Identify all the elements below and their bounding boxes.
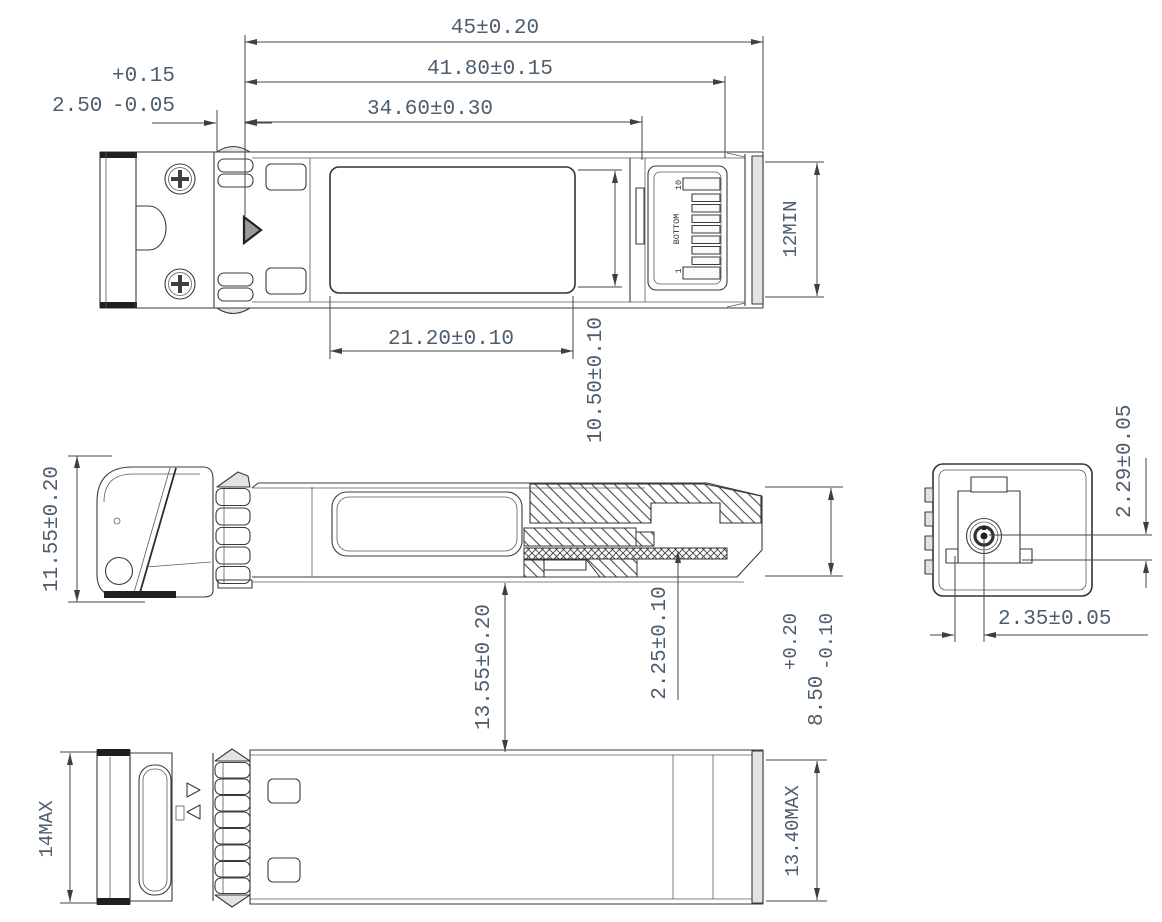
housing-slot — [266, 164, 306, 190]
connector-bottom-label: BOTTOM — [672, 214, 682, 245]
latch-lever-edge — [139, 468, 176, 596]
line — [727, 303, 745, 307]
hatched-bottom — [524, 560, 544, 577]
dim-label-width: 21.20±0.10 — [388, 328, 514, 351]
dim-height-max: 14MAX — [36, 800, 58, 858]
body-slot — [332, 492, 522, 556]
housing-slot — [268, 779, 300, 803]
handle-slot — [139, 765, 171, 895]
dim-height-value: 8.50 — [806, 676, 829, 726]
bale-edge-bar — [97, 749, 130, 756]
phillips-screw — [165, 269, 195, 299]
dim-latch-height: 11.55±0.20 — [41, 466, 64, 592]
pin-number-bottom: 1 — [674, 268, 684, 273]
line — [133, 468, 170, 596]
latch-detail — [176, 806, 184, 820]
bale-edge-bar — [100, 152, 137, 158]
bale-edge-bar — [100, 302, 137, 308]
dim-width-max: 13.40MAX — [782, 785, 804, 877]
end-cap — [752, 156, 763, 304]
dim-height-plus: +0.20 — [780, 613, 802, 670]
grip-ribs — [216, 472, 252, 588]
dim-width-min: 12MIN — [780, 200, 802, 257]
line — [727, 153, 745, 157]
drawing-canvas: 10 BOTTOM 1 45±0.20 41.80±0.15 34.60±0. — [0, 0, 1162, 922]
latch-pivot-circle — [106, 558, 133, 585]
hatched-housing — [530, 484, 761, 523]
line — [146, 562, 211, 567]
section-hatch — [524, 484, 761, 577]
pin-number-top: 10 — [674, 180, 684, 190]
dim-ferrule-vertical: 2.29±0.05 — [1114, 405, 1137, 518]
grip-ribs — [215, 749, 250, 907]
side-view — [97, 467, 762, 598]
pcb-section — [524, 548, 727, 559]
housing-slot — [266, 268, 306, 294]
unlock-triangle-left — [187, 805, 200, 819]
bottom-body — [250, 750, 763, 904]
dim-body-length: 41.80±0.15 — [427, 58, 553, 81]
bale-end-block — [97, 750, 130, 904]
dim-flange-plus: +0.15 — [112, 65, 175, 88]
end-view — [925, 464, 1092, 596]
unlock-triangle-right — [187, 783, 200, 797]
phillips-screw — [165, 164, 195, 194]
latch-foot-bar — [104, 591, 176, 598]
dim-13-55: 13.55±0.20 — [473, 604, 496, 730]
bottom-view — [97, 749, 763, 907]
dim-height-group: 8.50 +0.20 -0.10 — [780, 613, 838, 726]
engineering-drawing-page: 10 BOTTOM 1 45±0.20 41.80±0.15 34.60±0. — [0, 0, 1162, 922]
dim-flange-minus: -0.05 — [112, 95, 175, 118]
end-cap — [752, 751, 763, 903]
label-area — [330, 167, 575, 293]
hatched-step — [636, 532, 654, 546]
edge-connector: 10 BOTTOM 1 — [630, 158, 727, 302]
triangle-marker — [244, 217, 261, 243]
dim-flange-value: 2.50 — [52, 95, 102, 118]
dim-pcb: 2.25±0.10 — [649, 586, 672, 699]
bale-notch-tab — [136, 206, 166, 250]
dim-ferrule-horizontal: 2.35±0.05 — [998, 608, 1111, 631]
dim-housing-length: 34.60±0.30 — [367, 98, 493, 121]
side-serrations — [925, 488, 933, 574]
dim-overall-length: 45±0.20 — [451, 17, 539, 40]
hatched-insert — [524, 528, 636, 546]
latch-pin-dot — [114, 518, 120, 524]
bale-edge-bar — [97, 898, 130, 905]
housing-slot — [268, 858, 300, 882]
top-view: 10 BOTTOM 1 — [100, 147, 763, 314]
latch-block — [97, 467, 213, 598]
dim-height-minus: -0.10 — [816, 613, 838, 670]
dim-label-height: 10.50±0.10 — [585, 317, 608, 443]
hatched-wedge — [586, 559, 637, 577]
